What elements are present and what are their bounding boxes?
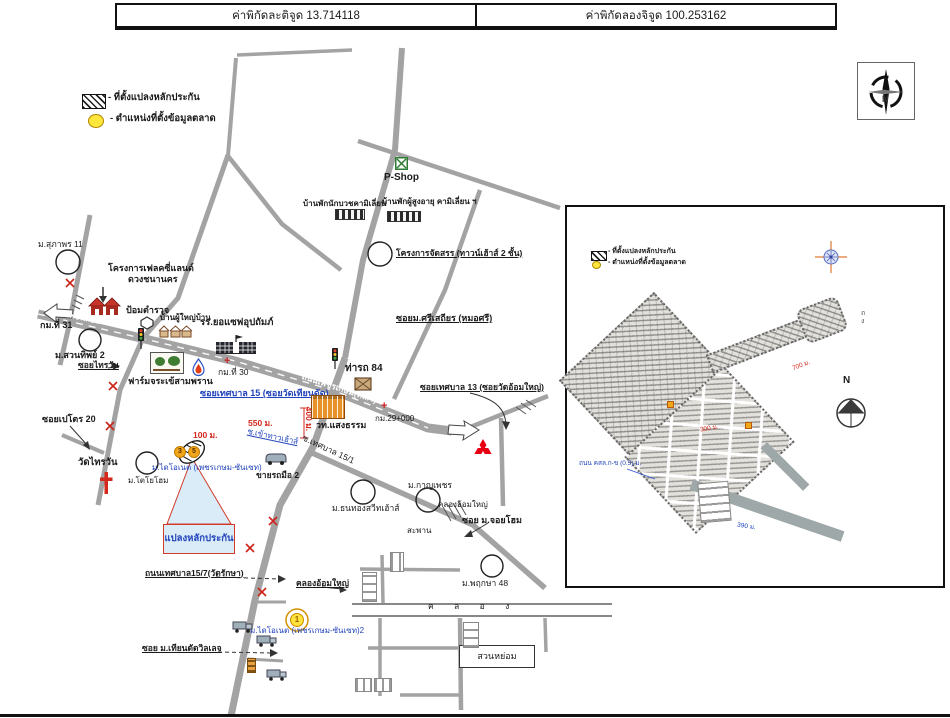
label-soi-thetsaban-13: ซอยเทศบาล 13 (ซอยวัดอ้อมใหญ่) — [420, 383, 544, 393]
label-soi-srisathian: ซอยม.ศรีเสถียร (หมอศรี) — [396, 313, 492, 323]
inset-market-marker-icon — [592, 261, 601, 269]
row-housing-block — [374, 678, 392, 692]
compass-rose-icon: N — [857, 62, 915, 120]
inset-row-housing — [697, 481, 731, 524]
collateral-callout-box: แปลงหลักประกัน — [163, 524, 235, 554]
label-suan-yom: สวนหย่อม — [477, 651, 516, 661]
label-toyohome: ม.โตโยโฮม — [128, 476, 168, 485]
inset-legend-market-label: - ตำแหน่งที่ตั้งข้อมูลตลาด — [608, 259, 686, 267]
label-camillian-elderly-home: บ้านพักผู้สูงอายุ คามิเลี่ยน ฯ — [382, 197, 476, 206]
label-crocodile-farm: ฟาร์มจระเข้สามพราน — [128, 376, 213, 386]
village-circles — [56, 242, 503, 577]
label-wat-saiwan: วัดไทรวัน — [78, 458, 117, 469]
label-khlong-om-yai-2: คลองอ้อมใหญ่ — [438, 500, 488, 509]
college-icon — [311, 395, 345, 419]
sign-icon — [247, 658, 256, 673]
shield-3-number: 3 — [176, 448, 184, 456]
label-bridge: สะพาน — [407, 526, 431, 535]
camillian-monk-building-icon — [335, 209, 365, 220]
inset-north-label: N — [843, 375, 850, 387]
market-point-number: 1 — [293, 615, 301, 624]
picture-frame-icon — [150, 352, 184, 374]
market-marker-icon — [88, 114, 104, 128]
van-icon — [264, 452, 288, 466]
label-dionet-1: ม.ไดโอเนต (เพชรเกษม-ซันเซท) — [152, 463, 262, 472]
crosshair-compass-icon — [815, 241, 847, 273]
page-bottom-rule — [0, 714, 950, 717]
inset-dist-bottom: 390 ม. — [737, 522, 757, 532]
north-arrow-icon — [837, 399, 865, 427]
police-box-icon — [140, 316, 154, 330]
row-housing-block — [463, 622, 479, 648]
label-km-30: กม.ที่ 30 — [218, 368, 249, 378]
label-soi-petro-20: ซอยเปโตร 20 — [42, 414, 96, 424]
label-suanthip-2: ม.สวนทิพย์ 2 — [55, 350, 105, 360]
inset-legend-plot-label: - ที่ตั้งแปลงหลักประกัน — [608, 248, 676, 256]
label-collateral-plot: แปลงหลักประกัน — [165, 534, 234, 545]
inset-side-text: ถ ง — [861, 310, 865, 326]
inset-map: - ที่ตั้งแปลงหลักประกัน - ตำแหน่งที่ตั้ง… — [565, 205, 945, 588]
label-townhouse-project: โครงการจัดสรร (ทาวน์เฮ้าส์ 2 ชั้น) — [396, 249, 522, 259]
label-pshop: P-Shop — [384, 172, 419, 184]
map-page: ค่าพิกัดละติจูด 13.714118 ค่าพิกัดลองจิจ… — [0, 0, 950, 718]
latitude-value: ค่าพิกัดละติจูด 13.714118 — [117, 5, 475, 26]
label-camillian-monk-house: บ้านพักนักบวชคามิเลี่ยน — [303, 199, 386, 208]
label-dionet-2: ม.ไดโอเนต (เพชรเกษม-ซันเซท)2 — [250, 626, 364, 635]
traffic-light-icon — [136, 328, 146, 350]
label-bus-stop-84: ท่ารถ 84 — [345, 363, 383, 375]
compass-rose-graphic: N — [858, 63, 914, 119]
row-housing-block — [355, 678, 372, 692]
label-soi-thetsaban-15-1: ซ.เทศบาล 15/1 — [301, 434, 356, 467]
row-housing-block — [362, 572, 377, 602]
row-housing-block — [390, 552, 404, 572]
plot-hatch-icon — [82, 94, 106, 109]
camillian-elderly-building-icon — [387, 211, 421, 222]
traffic-light-icon — [330, 348, 340, 370]
label-km-31: กม.ที่ 31 — [40, 320, 72, 330]
legend-market-label: - ตำแหน่งที่ตั้งข้อมูลตลาด — [110, 114, 216, 125]
church-cross-icon — [98, 470, 114, 496]
mitsubishi-logo-icon — [473, 439, 493, 459]
label-khlong-om-yai-1: คลองอ้อมใหญ่ — [296, 579, 349, 589]
tree-icon — [168, 356, 180, 366]
inset-dist-arm: 700 ม. — [791, 359, 811, 373]
coordinate-table: ค่าพิกัดละติจูด 13.714118 ค่าพิกัดลองจิจ… — [115, 3, 837, 30]
label-joseph-school: รร.ยอแซฟอุปถัมภ์ — [200, 318, 273, 329]
label-soi-saiwan: ซอยไทรวัน — [78, 361, 119, 371]
village-house-icon — [158, 324, 194, 338]
label-km-29000: กม.29+000 — [375, 414, 414, 423]
label-thanathong: ม.ธนทองสวีทเฮ้าส์ — [332, 504, 399, 514]
label-flexiland-line1: โครงการเฟลคซี่แลนด์ — [108, 263, 194, 273]
label-pruksa-48: ม.พฤกษา 48 — [462, 579, 508, 589]
km30-cross-icon: + — [224, 355, 230, 368]
longitude-value: ค่าพิกัดลองจิจูด 100.253162 — [475, 5, 835, 26]
label-saengtham-college: วท.แสงธรรม — [316, 420, 366, 430]
shield-5-number: 5 — [190, 448, 198, 456]
label-thetsaban-15-7: ถนนเทศบาล15/7(วัดรักษา) — [145, 569, 244, 579]
label-used-cars: ขายรถมือ 2 — [256, 471, 299, 481]
legend-plot-label: - ที่ตั้งแปลงหลักประกัน — [108, 93, 200, 104]
label-soi-joyhome: ซอย ม.จอยโฮม — [462, 515, 522, 525]
ground-line — [153, 369, 180, 371]
tree-icon — [155, 357, 165, 366]
inset-road-label: ถนน คสล.ก-ข (0.5) ม. — [579, 460, 641, 467]
label-dist-100m: 100 ม. — [193, 431, 218, 441]
inset-plot-hatch-icon — [591, 251, 607, 261]
inset-market-marker-2 — [745, 422, 752, 429]
truck-icon — [256, 634, 278, 647]
label-khlong-letters: ค ล อ ง — [428, 602, 518, 612]
label-soi-thetsaban-15: ซอยเทศบาล 15 (ซอยวัดเทียนดัด) — [200, 388, 329, 398]
truck-icon — [266, 668, 288, 681]
compass-n-label: N — [882, 94, 889, 104]
label-kanphet: ม.กาญเพชร — [408, 481, 452, 491]
pshop-icon — [395, 157, 408, 170]
school-icon — [216, 334, 256, 354]
label-soi-thiandat-village: ซอย ม.เทียนดัดวิลเลจ — [142, 644, 222, 654]
label-flexiland-line2: ดวงชนานคร — [128, 274, 178, 284]
label-suphaporn-11: ม.สุภาพร 11 — [38, 240, 83, 250]
park-box: สวนหย่อม — [459, 645, 535, 668]
right-arrow-icon — [448, 421, 479, 440]
km29-cross-icon: + — [381, 400, 387, 413]
inset-market-marker-1 — [667, 401, 674, 408]
label-soi-townhouse-entry: ซ.เข้าทาวเฮ้าส์ — [247, 427, 299, 447]
gas-station-icon — [191, 358, 206, 377]
